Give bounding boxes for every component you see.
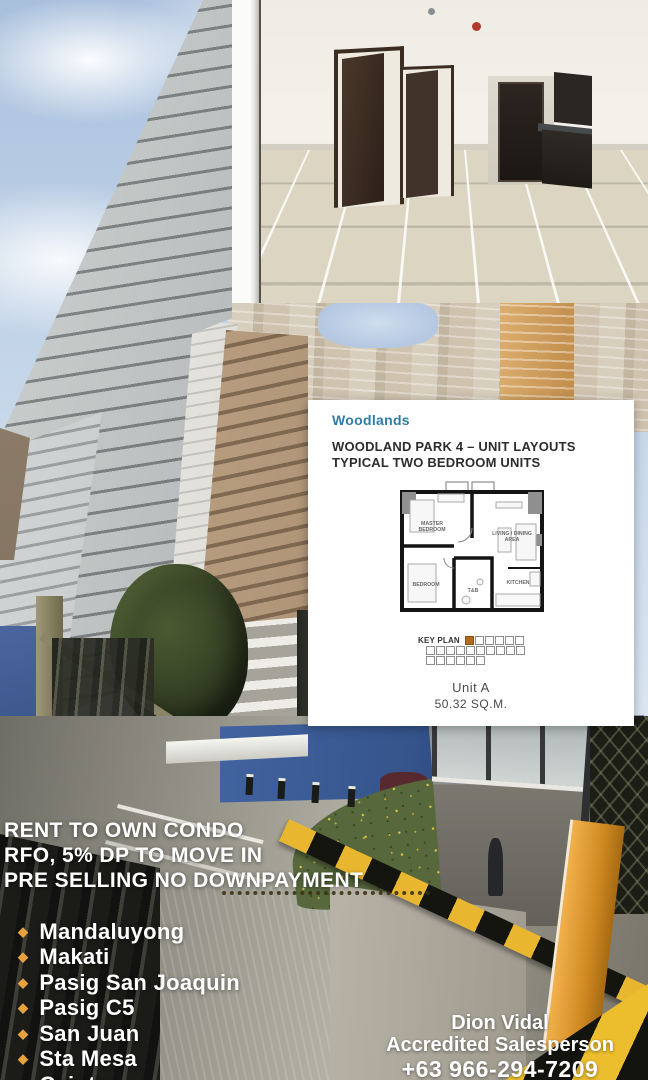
- list-item: ◆Sta Mesa: [10, 1047, 240, 1073]
- list-item: ◆San Juan: [10, 1021, 240, 1047]
- room-label-toilet: T&B: [468, 588, 479, 594]
- location-list: ◆Mandaluyong ◆Makati ◆Pasig San Joaquin …: [10, 919, 240, 1080]
- unit-area: 50.32 SQ.M.: [308, 697, 634, 711]
- diamond-bullet-icon: ◆: [18, 1051, 28, 1067]
- agent-role: Accredited Salesperson: [380, 1034, 620, 1056]
- bollard: [277, 778, 285, 799]
- main-door: [498, 82, 544, 182]
- location-label: Pasig C5: [39, 995, 134, 1021]
- location-label: Sta Mesa: [39, 1046, 137, 1072]
- location-label: San Juan: [39, 1021, 139, 1047]
- headline-line-1: RENT TO OWN CONDO: [4, 818, 363, 843]
- location-label: Cainta: [39, 1072, 108, 1080]
- kitchen-base-cabinet: [542, 129, 592, 188]
- list-item: ◆Cainta: [10, 1072, 240, 1080]
- unit-floorplan-drawing: MASTER BEDROOM LIVING / DINING AREA BEDR…: [388, 472, 556, 630]
- key-plan-label: KEY PLAN: [418, 636, 460, 645]
- agent-name: Dion Vidal: [380, 1012, 620, 1034]
- diamond-bullet-icon: ◆: [18, 975, 28, 991]
- headline-line-2: RFO, 5% DP TO MOVE IN: [4, 843, 363, 868]
- kitchen-upper-cabinet: [554, 72, 592, 126]
- unit-interior-photo: [232, 0, 648, 303]
- list-item: ◆Mandaluyong: [10, 919, 240, 945]
- room-label-kitchen: KITCHEN: [506, 580, 529, 586]
- contact-block: Dion Vidal Accredited Salesperson +63 96…: [380, 1012, 620, 1080]
- sky-gap: [318, 298, 438, 348]
- key-plan: KEY PLAN: [418, 636, 568, 666]
- headline-line-3: PRE SELLING NO DOWNPAYMENT: [4, 868, 363, 893]
- unit-name: Unit A: [308, 680, 634, 695]
- floorplan-title-line1: WOODLAND PARK 4 – UNIT LAYOUTS: [332, 439, 576, 454]
- location-label: Mandaluyong: [39, 919, 184, 945]
- floorplan-title-line2: TYPICAL TWO BEDROOM UNITS: [332, 455, 540, 470]
- diamond-bullet-icon: ◆: [18, 924, 28, 940]
- bollard: [347, 786, 355, 807]
- location-label: Pasig San Joaquin: [39, 970, 240, 996]
- bollard: [245, 774, 253, 795]
- list-item: ◆Makati: [10, 945, 240, 971]
- diamond-bullet-icon: ◆: [18, 1026, 28, 1042]
- brand-logo: Woodlands: [332, 412, 410, 428]
- bollard: [311, 782, 319, 803]
- agent-phone: +63 966-294-7209: [380, 1056, 620, 1080]
- location-label: Makati: [39, 944, 109, 970]
- condo-ad-poster: Woodlands WOODLAND PARK 4 – UNIT LAYOUTS…: [0, 0, 648, 1080]
- dotted-divider: [222, 891, 430, 895]
- fire-sprinkler: [472, 22, 481, 31]
- room-label-master-2: BEDROOM: [418, 527, 445, 533]
- open-door: [342, 53, 384, 207]
- floorplan-card: Woodlands WOODLAND PARK 4 – UNIT LAYOUTS…: [308, 400, 634, 726]
- diamond-bullet-icon: ◆: [18, 1000, 28, 1016]
- ceiling-fixture: [428, 8, 435, 15]
- key-plan-highlighted-unit: [465, 636, 474, 645]
- headline-block: RENT TO OWN CONDO RFO, 5% DP TO MOVE IN …: [4, 818, 363, 893]
- room-label-bedroom: BEDROOM: [412, 582, 439, 588]
- list-item: ◆Pasig San Joaquin: [10, 970, 240, 996]
- person: [488, 838, 503, 896]
- foreground-door-edge: [232, 0, 261, 303]
- diamond-bullet-icon: ◆: [18, 949, 28, 965]
- room-label-living-2: AREA: [505, 537, 520, 543]
- list-item: ◆Pasig C5: [10, 996, 240, 1022]
- open-door: [406, 70, 438, 198]
